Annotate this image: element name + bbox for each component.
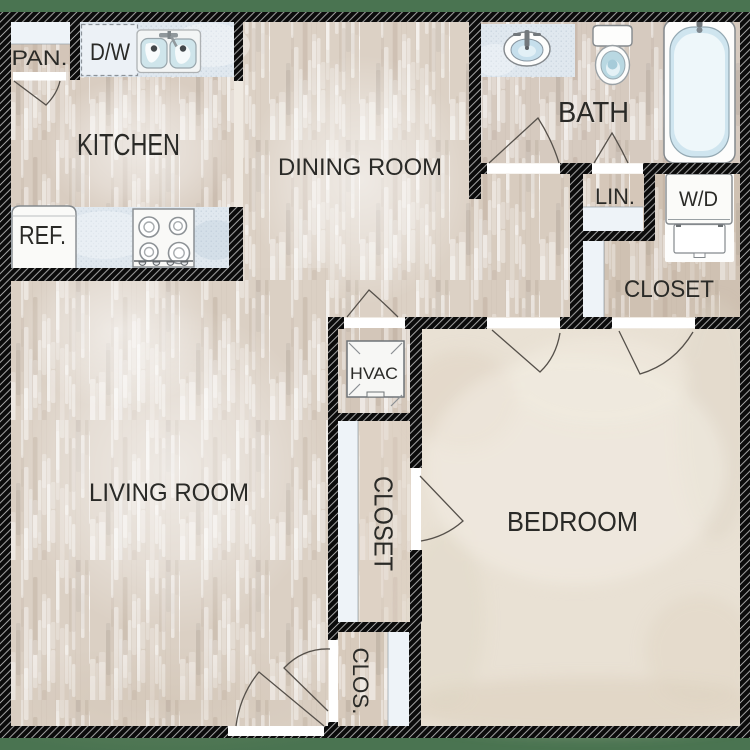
svg-text:HVAC: HVAC: [350, 364, 398, 383]
svg-text:D/W: D/W: [90, 39, 130, 66]
svg-text:CLOS.: CLOS.: [348, 648, 373, 715]
svg-text:DINING ROOM: DINING ROOM: [278, 154, 442, 181]
svg-text:CLOSET: CLOSET: [369, 476, 399, 571]
svg-text:PAN.: PAN.: [12, 47, 68, 70]
svg-text:LIVING ROOM: LIVING ROOM: [89, 479, 249, 507]
svg-text:BATH: BATH: [558, 97, 629, 129]
svg-text:CLOSET: CLOSET: [624, 276, 714, 303]
svg-text:BEDROOM: BEDROOM: [507, 506, 638, 537]
svg-text:W/D: W/D: [679, 188, 718, 211]
svg-text:KITCHEN: KITCHEN: [77, 127, 180, 162]
svg-text:REF.: REF.: [19, 220, 66, 250]
svg-text:LIN.: LIN.: [595, 184, 635, 209]
